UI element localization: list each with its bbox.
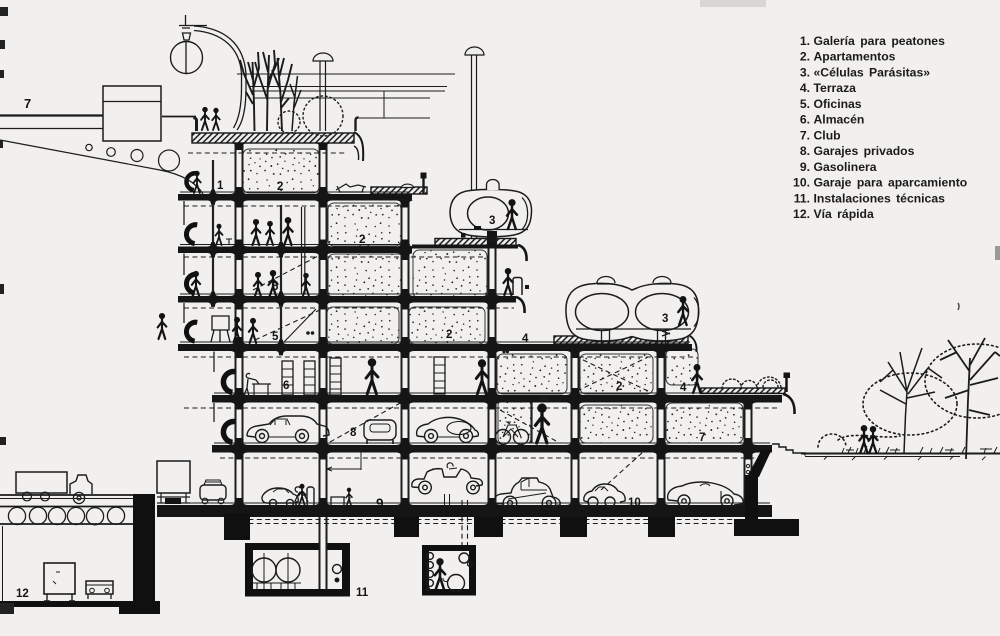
svg-text:10: 10 [628,497,641,509]
svg-text:12.: 12. [793,207,810,221]
svg-text:5: 5 [272,331,279,343]
svg-text:Apartamentos: Apartamentos [814,50,896,64]
svg-text:7: 7 [24,96,31,111]
svg-text:9: 9 [376,496,384,511]
svg-text:Oficinas: Oficinas [814,97,862,111]
svg-text:Vía rápida: Vía rápida [814,207,874,221]
svg-text:6.: 6. [800,113,810,127]
svg-text:Galería para peatones: Galería para peatones [814,34,946,48]
svg-text:3: 3 [489,215,495,227]
svg-text:5.: 5. [800,97,810,111]
svg-text:11: 11 [356,587,369,599]
svg-text:8: 8 [350,427,357,439]
svg-text:3.: 3. [800,66,810,80]
svg-text:3: 3 [662,313,668,325]
svg-text:1.: 1. [800,34,810,48]
svg-text:«Células Parásitas»: «Células Parásitas» [814,66,931,80]
svg-text:12: 12 [16,588,29,600]
svg-text:Instalaciones técnicas: Instalaciones técnicas [814,191,946,205]
svg-text:Terraza: Terraza [814,81,857,95]
svg-text:Club: Club [814,128,841,142]
svg-text:10.: 10. [793,176,810,190]
svg-text:6: 6 [283,380,289,392]
svg-text:7: 7 [699,432,705,444]
svg-text:1: 1 [217,180,224,192]
svg-text:Garaje para aparcamiento: Garaje para aparcamiento [814,176,968,190]
svg-text:5: 5 [272,281,279,293]
svg-text:2: 2 [277,181,283,193]
svg-text:Gasolinera: Gasolinera [814,160,877,174]
svg-text:2: 2 [616,381,622,393]
svg-text:2: 2 [359,234,365,246]
svg-text:4: 4 [522,333,529,345]
svg-text:9.: 9. [800,160,810,174]
svg-text:2: 2 [446,329,452,341]
svg-text:Almacén: Almacén [814,113,865,127]
svg-text:8.: 8. [800,144,810,158]
svg-text:2.: 2. [800,50,810,64]
svg-text:Garajes privados: Garajes privados [814,144,915,158]
svg-text:11.: 11. [794,191,810,205]
svg-text:4: 4 [680,382,687,394]
svg-text:7.: 7. [800,128,810,142]
svg-text:4.: 4. [800,81,810,95]
